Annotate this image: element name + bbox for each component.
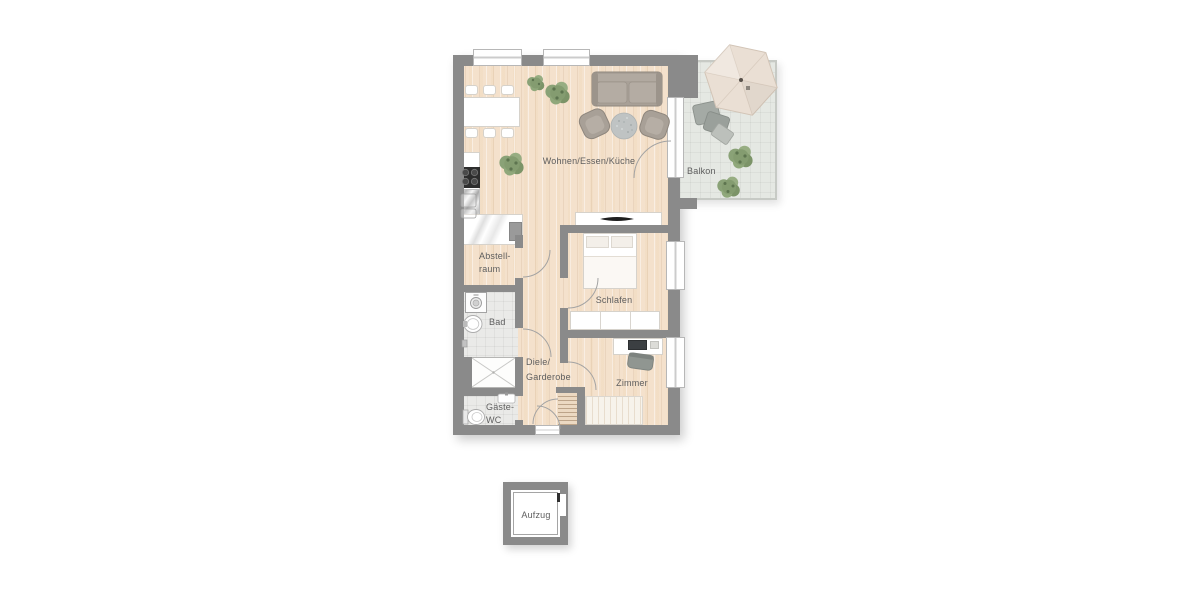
armchair — [638, 108, 672, 141]
room-label-wohnen: Wohnen/Essen/Küche — [528, 156, 650, 167]
room-label-bad: Bad — [489, 317, 506, 328]
room-label-balkon: Balkon — [687, 166, 716, 177]
tv — [600, 217, 634, 221]
room-label-gaeste-wc-line2: WC — [486, 415, 501, 426]
sink-bowls — [461, 194, 476, 218]
room-label-zimmer: Zimmer — [602, 378, 662, 389]
floor-plan-canvas: Wohnen/Essen/Küche Balkon Abstell- raum … — [0, 0, 1200, 600]
stove-burners — [462, 169, 477, 184]
round-rug — [611, 113, 637, 139]
parasol — [705, 45, 777, 115]
room-label-schlafen: Schlafen — [574, 295, 654, 306]
shower-cross — [472, 358, 515, 387]
plant — [499, 153, 523, 176]
arc-storage-door — [523, 250, 550, 277]
plant — [545, 82, 569, 105]
arc-entrance-door — [537, 406, 560, 429]
room-label-abstellraum-line1: Abstell- — [479, 251, 511, 262]
room-label-gaeste-wc-line1: Gäste- — [486, 402, 514, 413]
room-label-abstellraum-line2: raum — [479, 264, 500, 275]
sofa — [592, 72, 662, 106]
bath-fitting — [462, 340, 467, 347]
room-label-diele-line2: Garderobe — [526, 372, 571, 383]
plant — [527, 75, 544, 91]
toilet — [463, 410, 485, 425]
room-label-aufzug: Aufzug — [506, 510, 566, 521]
plant — [717, 177, 740, 198]
desk-chair — [627, 352, 654, 370]
arc-wc-door — [533, 399, 558, 424]
washing-machine-drum — [471, 294, 482, 309]
room-label-diele-line1: Diele/ — [526, 357, 550, 368]
bath-washbasin — [463, 316, 482, 333]
armchair — [577, 106, 612, 141]
arc-zimmer-door — [568, 362, 596, 390]
plant — [728, 146, 752, 169]
arc-bath-door — [523, 329, 551, 357]
